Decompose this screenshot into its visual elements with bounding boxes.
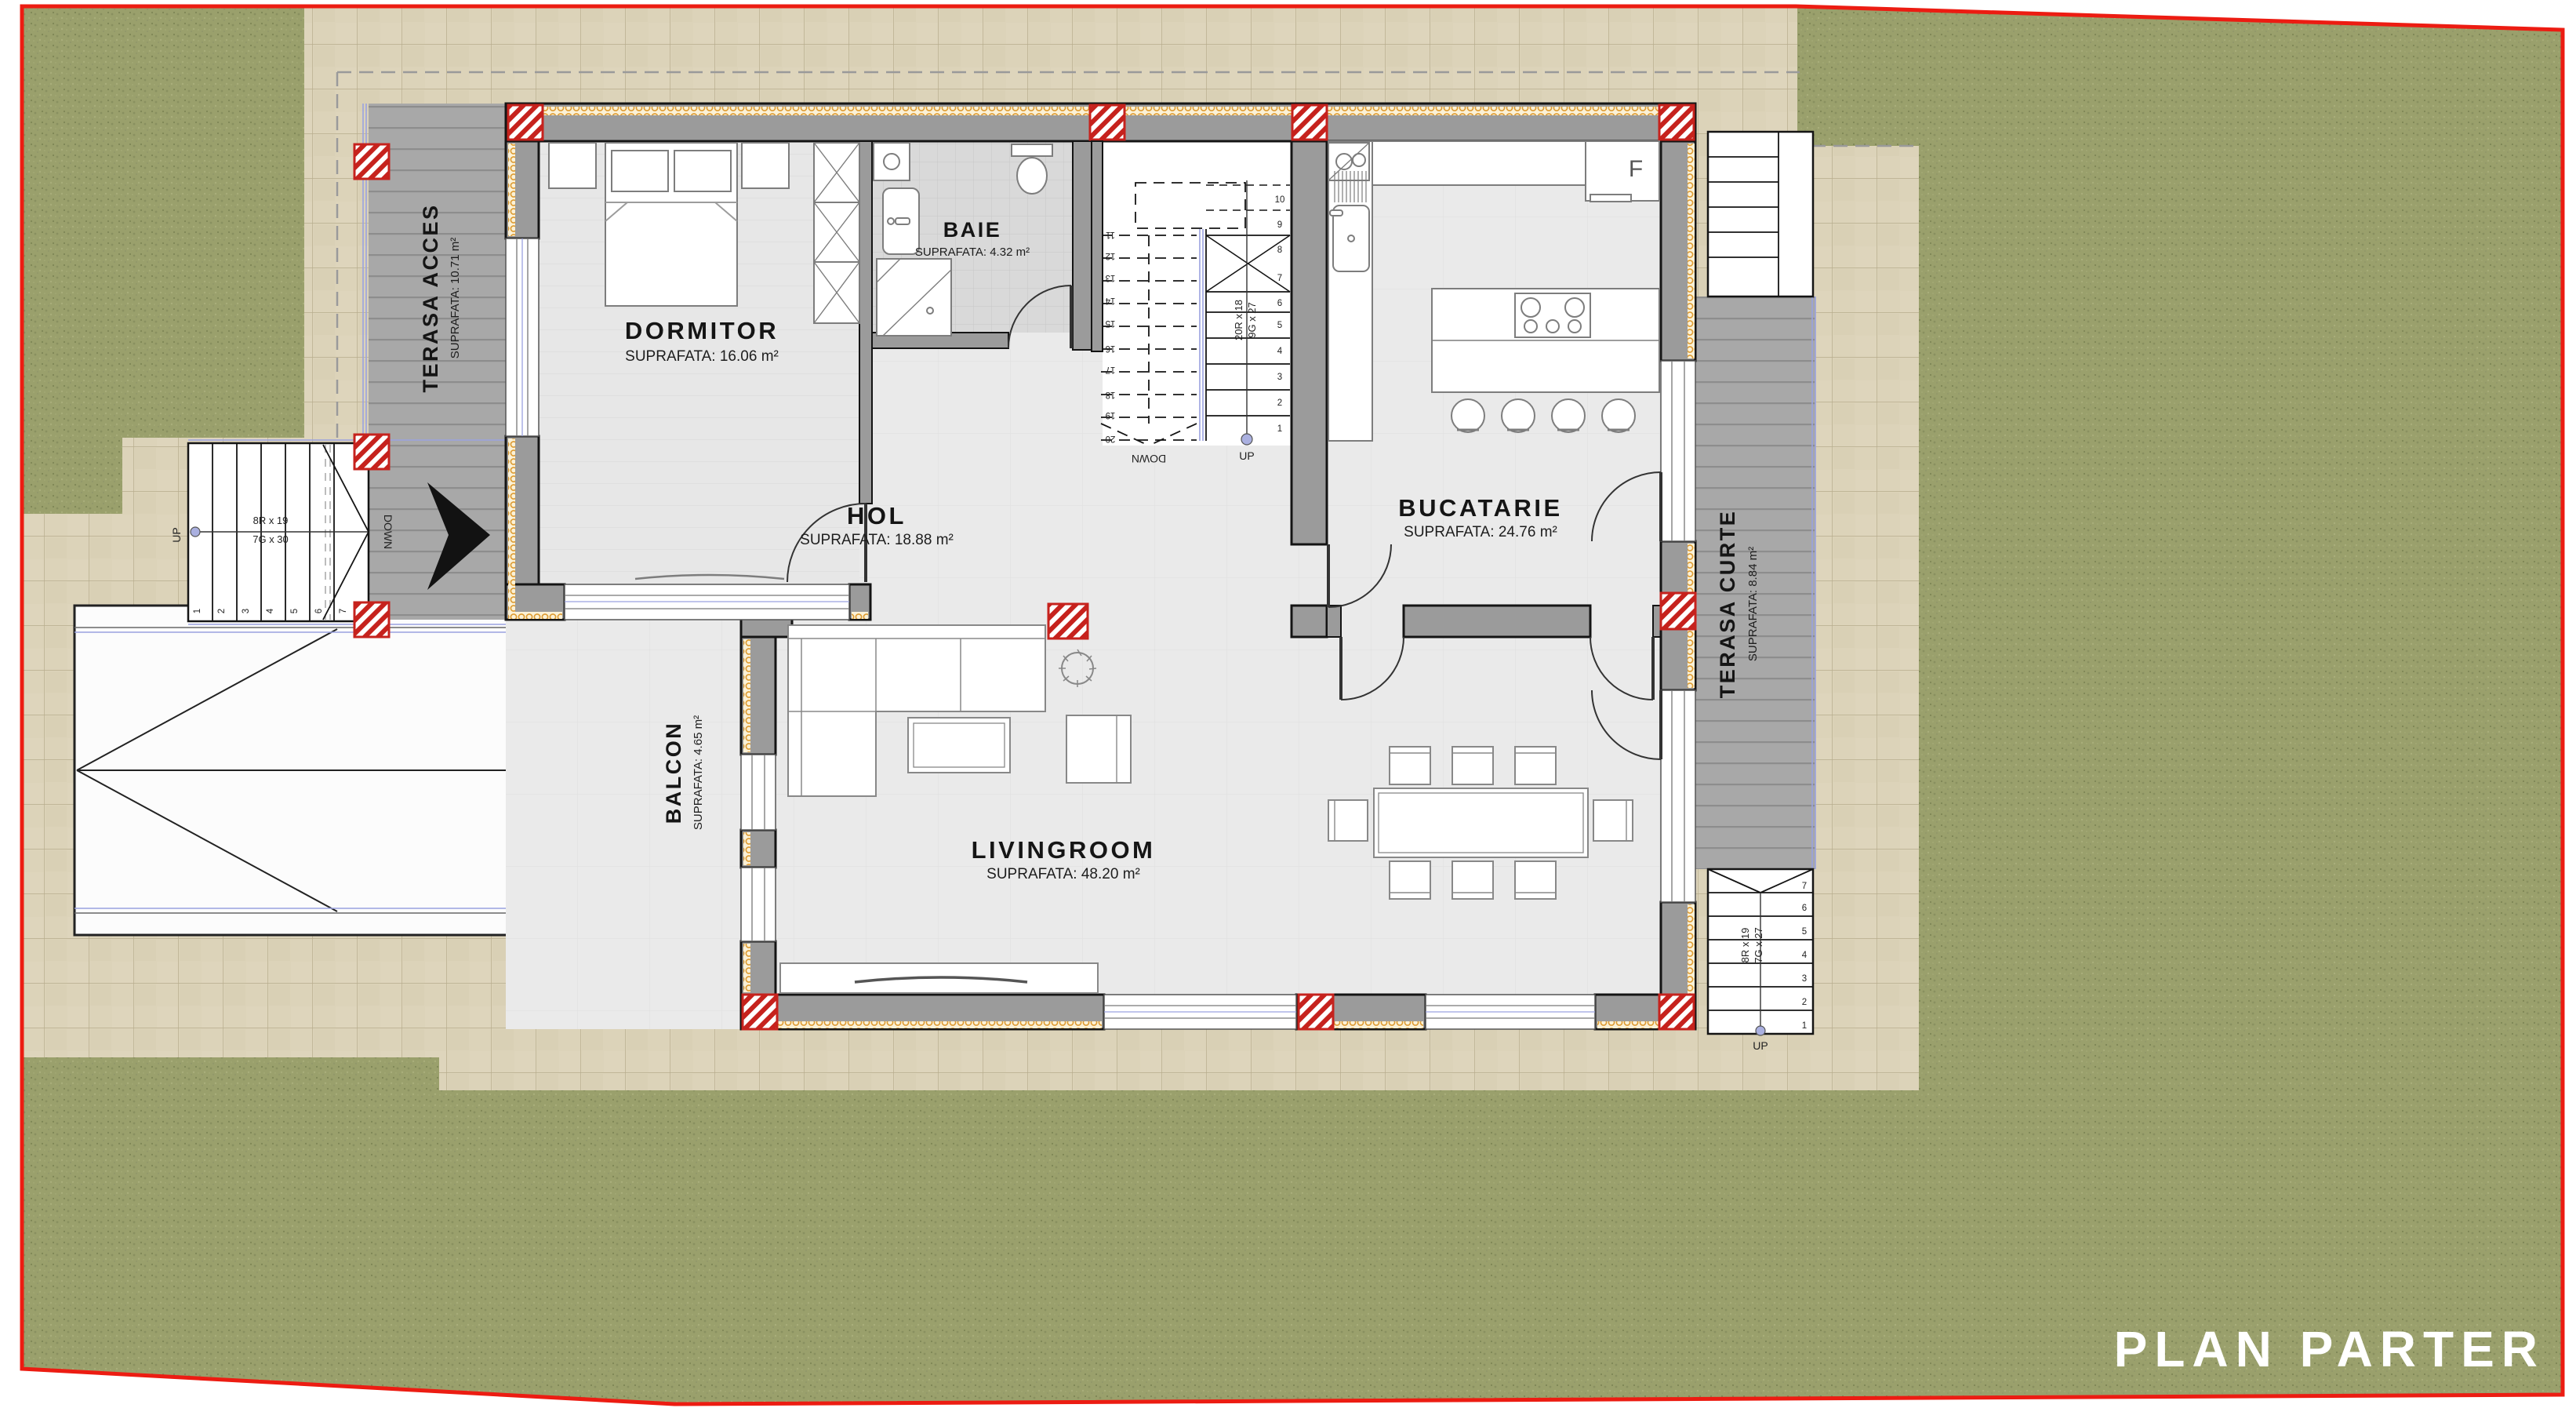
nightstand	[742, 143, 789, 188]
main-step: 8	[1277, 246, 1282, 255]
area-bucatarie: SUPRAFATA: 24.76 m²	[1404, 524, 1557, 540]
main-step: 20	[1106, 434, 1116, 443]
main-note1: 20R x 18	[1233, 300, 1244, 340]
curte-step: 4	[1802, 951, 1808, 960]
label-balcon: BALCON	[662, 722, 685, 824]
area-balcon: SUPRAFATA: 4.65 m²	[692, 715, 705, 830]
curte-step: 3	[1802, 974, 1807, 984]
curte-step: 5	[1802, 927, 1807, 937]
curte-note2: 7G x 27	[1753, 927, 1764, 963]
entry-step: 6	[314, 609, 324, 613]
floor-plan-page: DORMITOR SUPRAFATA: 16.06 m² BAIE SUPRAF…	[0, 0, 2576, 1408]
entry-down: DOWN	[382, 515, 394, 549]
label-livingroom: LIVINGROOM	[972, 836, 1156, 864]
grass-top-left	[22, 6, 304, 514]
area-terasa-acces: SUPRAFATA: 10.71 m²	[449, 238, 462, 359]
dining-table	[1374, 788, 1588, 857]
main-step: 11	[1106, 230, 1115, 239]
fridge	[1586, 141, 1659, 202]
curte-up: UP	[1753, 1039, 1768, 1052]
shower	[877, 259, 951, 336]
main-up: UP	[1239, 449, 1254, 462]
floor-plan-canvas: DORMITOR SUPRAFATA: 16.06 m² BAIE SUPRAF…	[0, 0, 2576, 1408]
curte-step: 2	[1802, 998, 1807, 1007]
curte-note1: 8R x 19	[1739, 928, 1751, 963]
main-step: 10	[1275, 195, 1285, 205]
main-note2: 9G x 27	[1246, 302, 1258, 338]
entry-step: 1	[193, 609, 202, 613]
main-step: 14	[1105, 296, 1115, 305]
entry-step: 2	[217, 609, 227, 613]
dish-rack	[1333, 168, 1368, 202]
double-bed	[605, 143, 737, 306]
label-terasa-curte: TERASA CURTE	[1716, 510, 1739, 699]
entry-step: 7	[339, 609, 348, 613]
main-step: 12	[1106, 251, 1116, 260]
side-table	[1066, 715, 1131, 783]
bathroom-sink	[883, 188, 919, 254]
plan-title-logo: PLAN PARTER	[2114, 1321, 2545, 1377]
label-hol: HOL	[847, 502, 907, 529]
area-terasa-curte: SUPRAFATA: 8.84 m²	[1746, 547, 1760, 661]
label-terasa-acces: TERASA ACCES	[419, 203, 442, 392]
entry-step: 3	[242, 609, 251, 613]
main-step: 9	[1277, 220, 1282, 230]
entry-note1: 8R x 19	[253, 515, 289, 526]
stair-core-floor	[1103, 141, 1292, 446]
curte-step: 7	[1802, 882, 1807, 891]
main-step: 3	[1277, 373, 1282, 382]
label-bucatarie: BUCATARIE	[1398, 494, 1562, 522]
kitchen-sink	[1330, 206, 1369, 271]
coffee-table	[908, 718, 1010, 773]
washing-machine	[874, 143, 910, 180]
entry-step: 4	[266, 608, 275, 613]
kitchen-island	[1432, 289, 1659, 392]
label-dormitor: DORMITOR	[625, 317, 779, 344]
main-step: 4	[1277, 347, 1283, 356]
main-step: 1	[1277, 424, 1282, 434]
main-step: 18	[1106, 390, 1116, 399]
main-step: 19	[1106, 410, 1116, 420]
tv-console	[780, 963, 1098, 993]
area-baie: SUPRAFATA: 4.32 m²	[915, 246, 1030, 259]
area-hol: SUPRAFATA: 18.88 m²	[800, 532, 954, 548]
nightstand	[549, 143, 596, 188]
main-step: 5	[1277, 321, 1282, 330]
main-step: 15	[1106, 318, 1116, 328]
main-step: 6	[1277, 299, 1282, 308]
entry-step: 5	[290, 609, 300, 613]
fridge-label: F	[1629, 156, 1643, 182]
main-down: DOWN	[1132, 453, 1166, 465]
entry-up: UP	[170, 527, 183, 542]
main-step: 17	[1106, 365, 1116, 374]
wardrobe	[814, 143, 859, 323]
area-dormitor: SUPRAFATA: 16.06 m²	[625, 348, 779, 365]
main-step: 7	[1277, 274, 1282, 283]
main-step: 13	[1106, 273, 1116, 282]
curte-upper-stairs	[1708, 132, 1813, 297]
main-step: 16	[1106, 344, 1116, 353]
curte-step: 1	[1802, 1021, 1807, 1031]
entry-note2: 7G x 30	[253, 533, 289, 545]
main-step: 2	[1277, 398, 1282, 408]
area-livingroom: SUPRAFATA: 48.20 m²	[986, 866, 1140, 882]
label-baie: BAIE	[943, 218, 1002, 242]
kitchen-counter-top	[1372, 141, 1586, 185]
curte-step: 6	[1802, 904, 1807, 913]
